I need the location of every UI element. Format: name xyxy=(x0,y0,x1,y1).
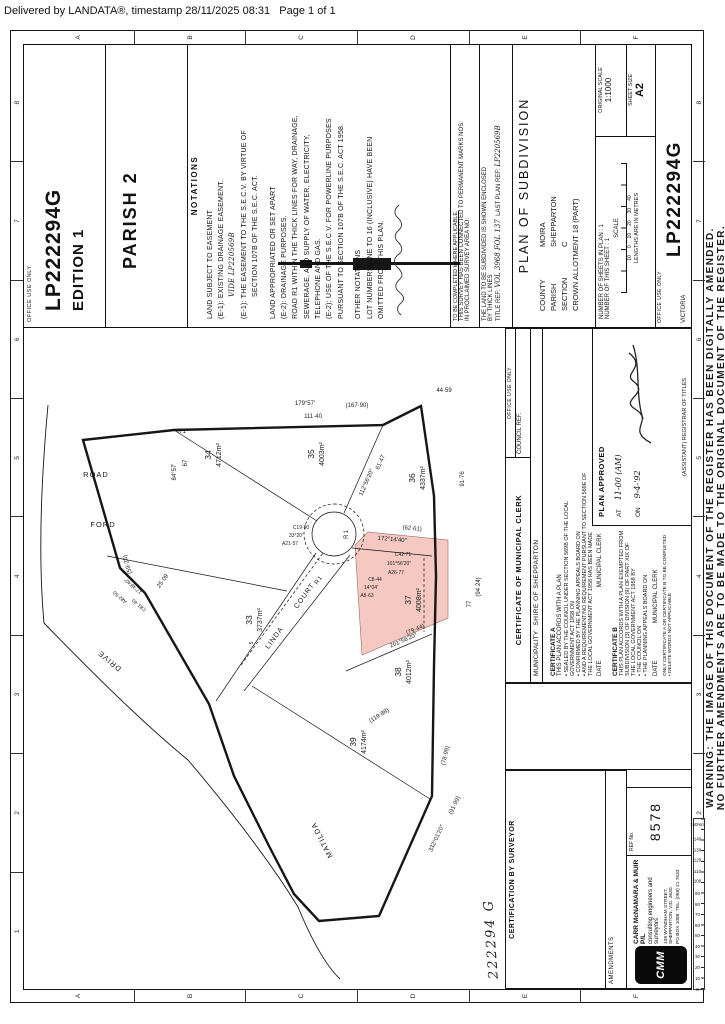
dim-label: 179°57' xyxy=(295,401,315,407)
firm-logo: CMM xyxy=(635,946,687,984)
office-use-label: OFFICE USE ONLY xyxy=(27,265,33,322)
grid-letter: D xyxy=(357,31,469,44)
section-label: SECTION xyxy=(560,247,569,311)
illegible-handwriting-squiggle xyxy=(392,159,406,319)
office-use-label: OFFICE USE ONLY xyxy=(657,271,663,323)
lot-number: 36 xyxy=(407,473,417,483)
grid-letter: F xyxy=(580,990,692,1002)
dim-label: 44·59 xyxy=(436,388,452,394)
title-ref-label: TITLE REF: xyxy=(496,289,502,321)
lot-area: 4174m² xyxy=(361,729,368,753)
dim-label: 61·47 xyxy=(375,454,387,471)
grid-letter: C xyxy=(245,990,357,1002)
dim-label: (94·24) xyxy=(476,577,482,596)
ruler-label: 70 xyxy=(695,912,700,917)
grid-strip-top: 1 2 3 4 5 6 7 8 xyxy=(11,44,23,990)
dim-label: (91·99) xyxy=(448,796,462,816)
grid-number: 8 xyxy=(11,44,23,162)
ref-value: 8578 xyxy=(647,788,663,855)
certificate-b-line: THIS PLAN ACCORDS WITH A PLAN EXEMPTED F… xyxy=(619,528,631,676)
notations-text: SEWERAGE, AND SUPPLY OF WATER, ELECTRICI… xyxy=(303,52,312,319)
municipal-clerk-label: MUNICIPAL CLERK xyxy=(597,533,603,587)
subdivision-plan-drawing: FORD ROAD DRIVE MATILDA LINDA COURT R1 R… xyxy=(24,328,490,989)
dim-label: A8·63 xyxy=(360,593,374,599)
ruler-label: 40 xyxy=(695,944,700,949)
road-marker-r1: R1 xyxy=(344,529,350,539)
firm-tagline: consulting engineers and surveyors xyxy=(648,856,660,944)
dim-label: 112°56'20″ xyxy=(359,468,376,497)
dim-label: 91·76 xyxy=(460,471,466,487)
municipality-label: MUNICIPALITY xyxy=(533,631,540,676)
ruler-label: 140 xyxy=(694,837,702,842)
dim-label: (167·90) xyxy=(346,403,369,409)
dim-label: 33°20' xyxy=(289,533,303,539)
grid-letter: D xyxy=(357,990,469,1002)
road-edge-matilda-drive xyxy=(41,405,340,979)
dim-label: 111·40 xyxy=(304,414,322,420)
grid-number: 3 xyxy=(11,636,23,754)
road-label-court: COURT xyxy=(293,582,316,610)
lot-area: 4337m² xyxy=(420,465,427,489)
lot-area: 4003m² xyxy=(319,441,326,465)
ruler-label: 100 xyxy=(694,879,702,884)
ruler-label: 110 xyxy=(694,869,701,874)
firm-logo-text: CMM xyxy=(655,951,667,979)
dim-label: (62·61) xyxy=(402,525,422,533)
grid-letter: F xyxy=(580,31,692,44)
state-label: VICTORIA xyxy=(681,295,687,323)
sheet-size-value: A2 xyxy=(634,44,646,136)
grid-number: 4 xyxy=(693,518,705,636)
grid-letter: E xyxy=(469,31,581,44)
parish-section: PARISH 2 xyxy=(106,44,188,327)
ruler-label: 30 xyxy=(695,954,700,959)
firm-address: SHEPPARTON, VIC. 3630. xyxy=(669,856,674,944)
grid-strip-left: A B C D E F xyxy=(23,990,692,1002)
notations-text: TELEPHONE AND GAS. xyxy=(314,52,323,319)
grid-number: 1 xyxy=(11,873,23,990)
surveyor-firm-box: CMM CARR McNAMARA & MUIR P/L consulting … xyxy=(626,855,692,989)
dim-label: 332°01'20″ xyxy=(428,823,446,853)
grid-number: 5 xyxy=(11,399,23,517)
county-value: MOIRA xyxy=(538,222,547,247)
road-label-linda: LINDA xyxy=(264,626,285,651)
subdivision-boundary xyxy=(83,406,436,921)
grid-number: 5 xyxy=(693,399,705,517)
notations-text: ROAD R1 WITHIN THE THICK LINES FOR WAY, … xyxy=(291,52,300,319)
survey-line: IN PROCLAIMED SURVEY AREA NO: xyxy=(465,50,471,321)
notations-text: (E-1): THE EASEMENT TO THE S.E.C.V. BY V… xyxy=(240,52,249,319)
dim-label: 25·09 xyxy=(156,573,170,590)
lot-area: 4008m² xyxy=(416,587,423,611)
certificate-b-title: CERTIFICATE B xyxy=(612,528,619,676)
grid-strip-right: A B C D E F xyxy=(23,31,692,44)
grid-number: 2 xyxy=(11,754,23,872)
ruler-label: 10 xyxy=(695,976,700,981)
plan-sheet-rotated: 1 2 3 4 5 6 7 8 1 2 3 4 5 6 7 8 A B C D … xyxy=(8,28,725,1005)
edition-heading: EDITION 1 xyxy=(70,229,87,311)
notations-text: OMITTED FROM THIS PLAN. xyxy=(377,52,386,319)
dim-label: A82·50 xyxy=(112,589,128,604)
dim-label: C81·40 xyxy=(131,597,147,612)
landata-delivery-header: Delivered by LANDATA®, timestamp 28/11/2… xyxy=(4,5,336,17)
notations-text: LAND APPROPRIATED OR SET APART xyxy=(269,52,278,319)
dim-label: (78·99) xyxy=(441,746,452,766)
ruler-label: 120 xyxy=(694,858,702,863)
title-ref-value: VOL 3968 FOL 137 xyxy=(494,219,502,287)
lot-number: 39 xyxy=(348,737,358,747)
firm-pobox: PO BOX 1088 xyxy=(676,914,681,944)
road-label-matilda: MATILDA xyxy=(309,821,335,860)
certificate-b-bullet: THE PLANNING APPEALS BOARD ON xyxy=(643,575,649,673)
grid-number: 3 xyxy=(693,636,705,754)
road-marker-r1: R1 xyxy=(177,429,187,435)
grid-number: 6 xyxy=(693,281,705,399)
lot-area: 4712m² xyxy=(216,442,223,466)
grid-letter: A xyxy=(23,31,134,44)
ruler-label: 0 xyxy=(696,987,699,992)
parish-value: SHEPPARTON xyxy=(549,196,558,247)
notations-text: (E-2): USE OF THE S.E.C.V. FOR POWERLINE… xyxy=(325,52,334,319)
grid-letter: A xyxy=(23,990,134,1002)
grid-number: 8 xyxy=(693,44,705,162)
firm-phone: TEL. (058) 21 7633 xyxy=(676,870,681,911)
dim-label: 101°56'20″ xyxy=(387,561,411,567)
amendments-box: AMENDMENTS xyxy=(605,770,627,989)
section-value: C xyxy=(560,242,569,247)
dim-label: C42·71 xyxy=(395,552,412,558)
county-label: COUNTY xyxy=(538,247,547,311)
amendments-header: AMENDMENTS xyxy=(606,771,615,988)
scanned-plan-page: Delivered by LANDATA®, timestamp 28/11/2… xyxy=(0,0,725,1024)
approved-on-label: ON xyxy=(635,507,642,517)
ref-number-box: REF No. 8578 xyxy=(626,787,692,855)
registrar-of-titles-label: (ASSISTANT) REGISTRAR OF TITLES xyxy=(682,329,688,525)
lengths-in-metres: LENGTHS ARE IN METRES xyxy=(634,137,640,319)
road-label-drive: DRIVE xyxy=(96,648,123,673)
dim-label: 5 xyxy=(249,641,255,644)
grid-number: 7 xyxy=(11,162,23,280)
certificate-a-title: CERTIFICATE A xyxy=(550,462,557,676)
empty-panel-box xyxy=(505,683,692,770)
lot-number: 37 xyxy=(403,595,413,605)
certificate-a-line: THIS PLAN ACCORDS WITH A PLAN xyxy=(557,462,563,676)
ruler-label: 90 xyxy=(695,891,700,896)
original-scale-value: 1:1000 xyxy=(604,44,613,136)
approved-at-value: 11-00 (AM) xyxy=(614,454,623,500)
notations-text: PURSUANT TO SECTION 107B OF THE S.E.C. A… xyxy=(337,52,346,319)
road-label-ford: FORD xyxy=(90,520,115,529)
registrar-signature xyxy=(621,339,659,449)
lot-number: 34 xyxy=(203,450,213,460)
warning-line-1: WARNING: THE IMAGE OF THIS DOCUMENT OF T… xyxy=(705,50,716,985)
municipal-clerk-header: CERTIFICATE OF MUNICIPAL CLERK xyxy=(514,495,523,646)
edition-box: OFFICE USE ONLY LP222294G EDITION 1 xyxy=(24,44,106,327)
lot-area: 4012m² xyxy=(406,659,413,683)
ref-label: REF No. xyxy=(627,788,635,855)
survey-connection-box: TO BE COMPLETED WHERE APPLICABLE. THIS S… xyxy=(451,44,513,327)
municipal-clerk-label: MUNICIPAL CLERK xyxy=(653,569,659,623)
notations-handwritten-ref: VIDE LP220569B xyxy=(228,52,237,297)
parish-label: PARISH xyxy=(549,247,558,311)
office-use-label: OFFICE USE ONLY xyxy=(506,329,513,457)
ruler-label: 20 xyxy=(695,965,700,970)
warning-line-2: NO FURTHER AMENDMENTS ARE TO BE MADE TO … xyxy=(716,50,725,985)
lot-number: 33 xyxy=(244,615,254,625)
lp-number: LP222294G xyxy=(664,141,686,257)
dim-label: 77 xyxy=(467,600,473,607)
surveyor-certification-header: CERTIFICATION BY SURVEYOR xyxy=(506,771,516,988)
ruler-label: 50 xyxy=(695,933,700,938)
municipality-value: SHIRE OF SHEPPARTON xyxy=(533,539,540,625)
dim-label: C8·44 xyxy=(368,577,382,583)
number-of-sheet: NUMBER OF THIS SHEET : 1 xyxy=(605,137,611,319)
scale-tick-labels: 10 0 10 20 30 40 xyxy=(627,137,633,319)
date-label: DATE xyxy=(597,660,603,676)
grid-letter: C xyxy=(245,31,357,44)
dim-label: 17°48'40″ xyxy=(123,576,143,595)
municipal-clerk-box: CERTIFICATE OF MUNICIPAL CLERK OFFICE US… xyxy=(505,328,692,683)
notations-text: OTHER NOTATIONS xyxy=(354,52,363,319)
ruler-label: 150mm xyxy=(690,822,705,827)
grid-letter: B xyxy=(134,990,246,1002)
lot-number: 35 xyxy=(306,449,316,459)
plan-approved-box: PLAN APPROVED AT 11-00 (AM) ON 9-4-'92 (… xyxy=(592,329,691,526)
title-block: PLAN OF SUBDIVISION COUNTYMOIRA PARISHSH… xyxy=(513,44,596,327)
dim-label: A21·57 xyxy=(282,541,298,547)
notations-text: LAND SUBJECT TO EASEMENT xyxy=(206,52,215,319)
last-plan-label: LAST PLAN REF: xyxy=(496,168,502,216)
dim-label: A26·77 xyxy=(388,570,404,576)
scale-label: SCALE xyxy=(614,137,620,319)
council-ref-label: COUNCIL REF. xyxy=(515,329,523,457)
notations-text: (E-1): EXISTING DRAINAGE EASEMENT. xyxy=(217,52,226,319)
date-label: DATE xyxy=(653,660,659,676)
grid-number: 6 xyxy=(11,281,23,399)
road-marker-r1: R1 xyxy=(314,575,325,586)
mm-ruler: 0 10 20 30 40 50 60 70 80 90 100 110 120… xyxy=(693,818,705,990)
lp-number-box: OFFICE USE ONLY LP222294G VICTORIA xyxy=(656,44,692,327)
surveyor-certification-box: CERTIFICATION BY SURVEYOR xyxy=(505,770,606,989)
notations-section: NOTATIONS LAND SUBJECT TO EASEMENT (E-1)… xyxy=(188,44,451,327)
survey-line: NOS: xyxy=(459,121,465,136)
plan-of-subdivision-title: PLAN OF SUBDIVISION xyxy=(517,44,531,327)
parish-note: PARISH 2 xyxy=(120,171,141,269)
firm-name: CARR McNAMARA & MUIR P/L xyxy=(633,856,647,944)
ruler-label: 60 xyxy=(695,923,700,928)
allotment-value: CROWN ALLOTMENT 18 (PART) xyxy=(571,44,580,311)
approved-at-label: AT xyxy=(616,509,623,517)
last-plan-value: LP220569B xyxy=(494,125,502,166)
notations-text: (E-2): DRAINAGE PURPOSES. xyxy=(280,52,289,319)
ruler-label: 130 xyxy=(694,848,702,853)
grid-number: 7 xyxy=(693,162,705,280)
dim-label: 84°57' xyxy=(172,464,178,481)
notations-text: LOT NUMBERS ONE TO 16 (INCLUSIVE) HAVE B… xyxy=(366,52,375,319)
plan-number-heading: LP222294G xyxy=(42,189,66,311)
notations-text: SECTION 107B OF THE S.E.C. ACT. xyxy=(251,52,260,297)
grid-letter: E xyxy=(469,990,581,1002)
dim-label: C19·90 xyxy=(293,525,310,531)
notations-header: NOTATIONS xyxy=(190,52,201,319)
plan-approved-title: PLAN APPROVED xyxy=(593,329,606,525)
approved-on-value: 9-4-'92 xyxy=(633,470,642,498)
dim-label: 14°04' xyxy=(364,585,378,591)
sheets-scale-block: NUMBER OF SHEETS IN PLAN : 1 NUMBER OF T… xyxy=(596,44,656,327)
lot-number: 38 xyxy=(393,667,403,677)
dim-label: (119·88) xyxy=(368,708,390,725)
grid-number: 4 xyxy=(11,518,23,636)
grid-letter: B xyxy=(134,31,246,44)
certificate-footer-note: • DELETE WORDS NOT APPLICABLE xyxy=(668,528,673,676)
dim-label: 67 xyxy=(183,459,189,466)
road-label-road: ROAD xyxy=(83,470,109,479)
ruler-label: 80 xyxy=(695,902,700,907)
lot-area: 3737m² xyxy=(257,607,264,631)
certificate-a-bullet: SEALED BY THE COUNCIL UNDER SECTION 569B… xyxy=(564,501,576,676)
right-panel: OFFICE USE ONLY LP222294G EDITION 1 PARI… xyxy=(24,44,692,328)
